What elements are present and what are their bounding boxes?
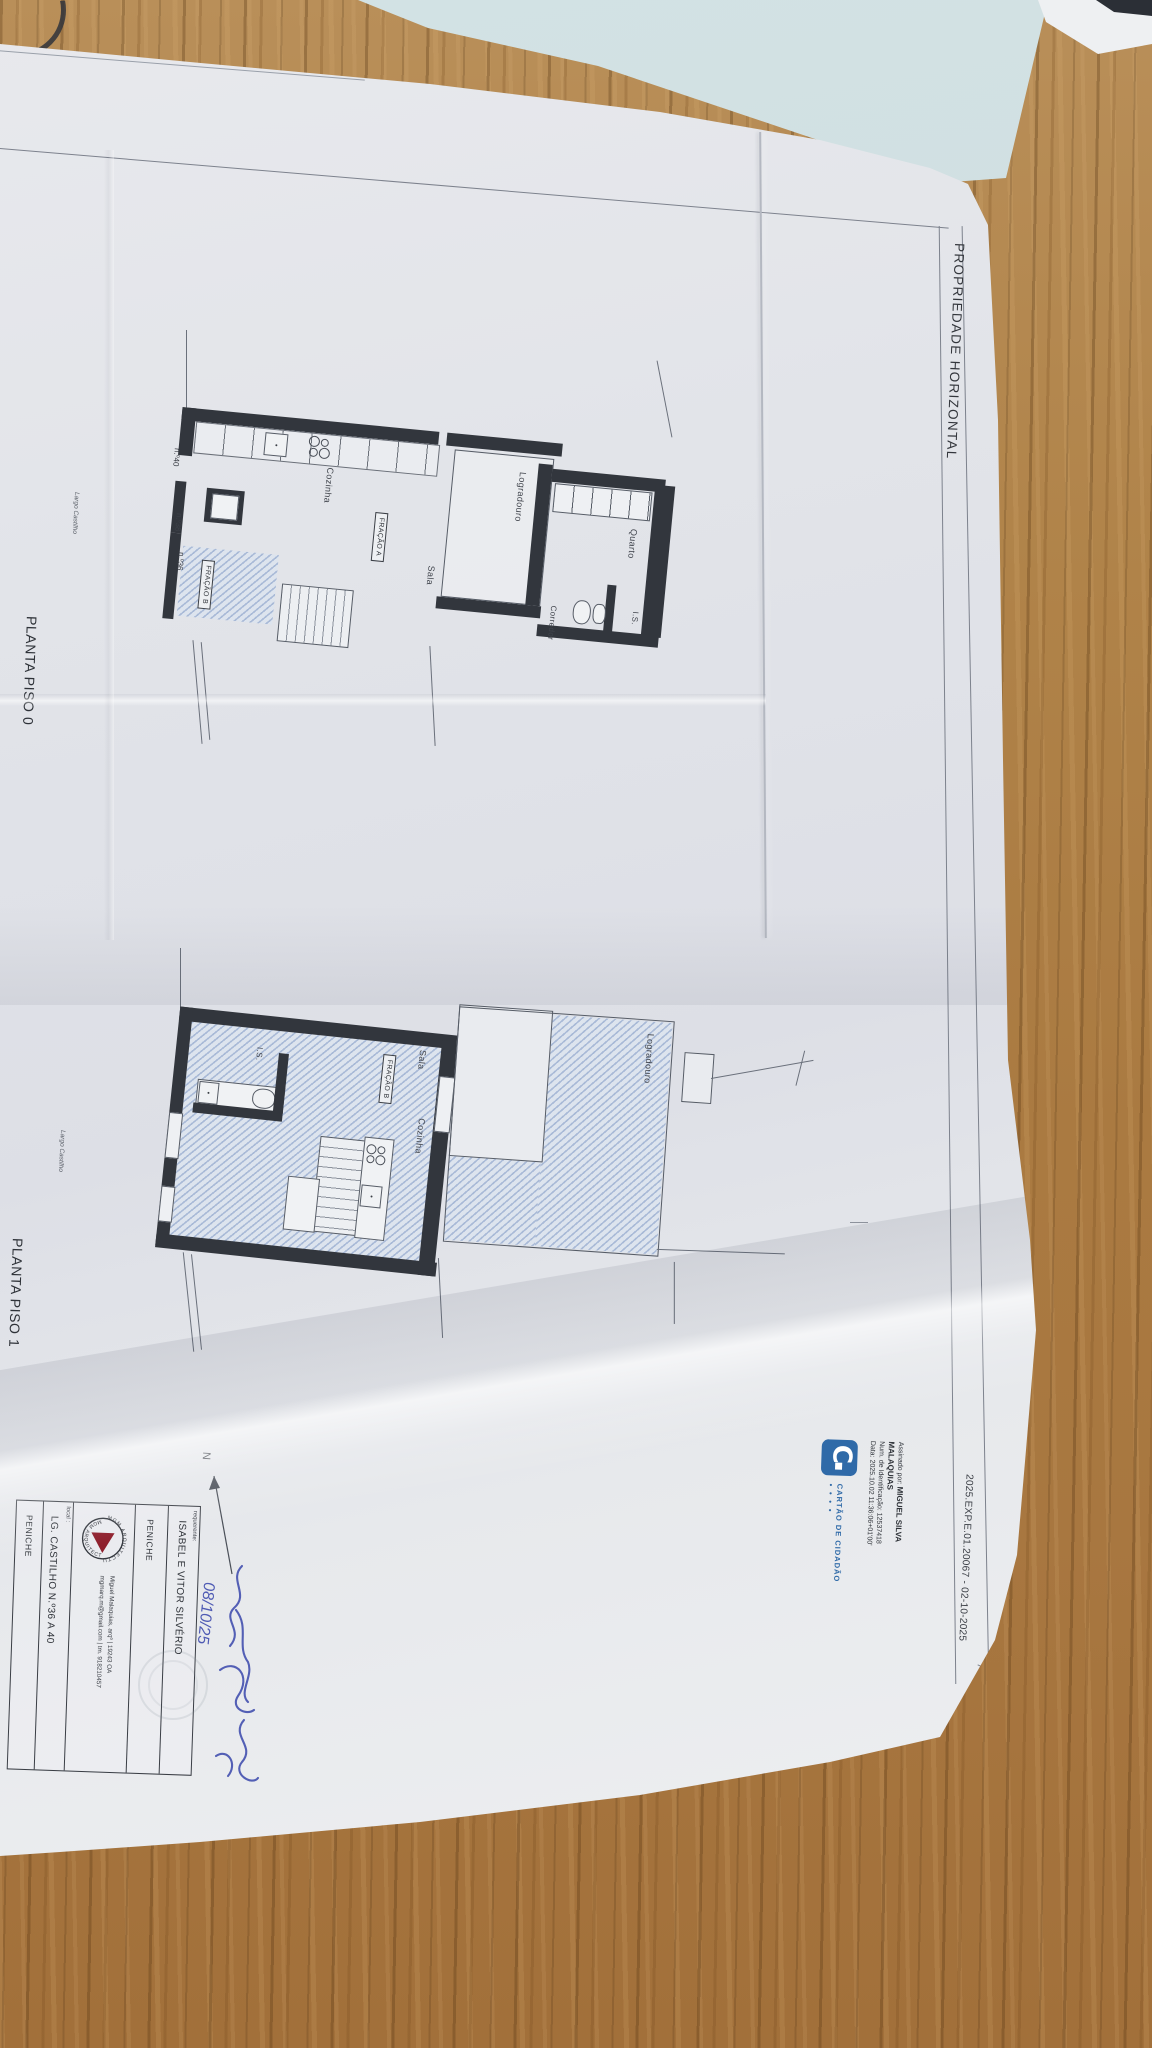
room-label-sala: Sala bbox=[416, 1050, 428, 1071]
house-number-40: n.º40 bbox=[171, 448, 182, 467]
photo-scene: PROPRIEDADE HORIZONTAL 2025.EXP.E.01.200… bbox=[0, 0, 1152, 2048]
frame-top-line bbox=[0, 148, 949, 229]
cartao-cidadao-label: CARTÃO DE CIDADÃO bbox=[832, 1484, 844, 1583]
room-label-is: I.S. bbox=[254, 1047, 264, 1061]
file-code: 2025.EXP.E.01.20067 - 02-10-2025 bbox=[956, 1474, 974, 1642]
sink-symbol bbox=[197, 1081, 219, 1105]
niche bbox=[210, 493, 239, 520]
signed-by-label: Assinado por: bbox=[896, 1442, 904, 1485]
floor-plan-piso-0: Cozinha FRAÇÃO B FRAÇÃO A Sala Logradour… bbox=[149, 392, 690, 686]
sink-symbol bbox=[359, 1184, 382, 1208]
house-number-36: n.º36 bbox=[175, 552, 186, 571]
toilet-symbol bbox=[572, 599, 592, 625]
room-label-cozinha: Cozinha bbox=[322, 467, 335, 504]
sink-symbol bbox=[263, 432, 288, 457]
signer-name-1: MIGUEL SILVA bbox=[894, 1486, 905, 1542]
house-number-38: n.º38 bbox=[173, 513, 184, 532]
boundary-line bbox=[201, 642, 211, 740]
fracao-a-label-box: FRAÇÃO A bbox=[371, 512, 389, 562]
room-label-sala: Sala bbox=[425, 565, 437, 585]
room-label-quarto: Quarto bbox=[626, 528, 639, 559]
left-crease bbox=[104, 150, 114, 940]
plan1-caption: PLANTA PISO 1 bbox=[6, 1238, 26, 1348]
signer-name-2: MALAQUIAS bbox=[885, 1441, 896, 1490]
handwritten-signature bbox=[180, 1550, 280, 1820]
cartao-cidadao-logo-icon: C bbox=[821, 1439, 858, 1476]
fold-shadow-band bbox=[0, 905, 1010, 1005]
stove-symbol bbox=[306, 434, 334, 462]
property-line bbox=[795, 1051, 805, 1086]
digital-signature-block: Assinado por: MIGUEL SILVA MALAQUIAS Num… bbox=[817, 1439, 906, 1594]
yard-outline bbox=[443, 1006, 675, 1256]
street-label-piso1: Largo Castilho bbox=[57, 1130, 66, 1172]
floor-plan-piso-1: I.S. Sala FRAÇÃO B Cozinha Quarto bbox=[148, 1000, 474, 1295]
fracao-b-hatch bbox=[177, 546, 279, 625]
room-label-is: I.S. bbox=[630, 611, 640, 625]
closet bbox=[283, 1176, 320, 1233]
boundary-line bbox=[657, 361, 673, 438]
stairs bbox=[277, 583, 354, 648]
sheet-edge-fold bbox=[759, 132, 767, 938]
plan0-caption: PLANTA PISO 0 bbox=[20, 616, 40, 726]
paper-crease bbox=[0, 694, 766, 706]
stove-symbol bbox=[363, 1143, 390, 1171]
planter-box bbox=[681, 1052, 714, 1104]
street-label-piso0: Largo Castilho bbox=[71, 492, 80, 534]
